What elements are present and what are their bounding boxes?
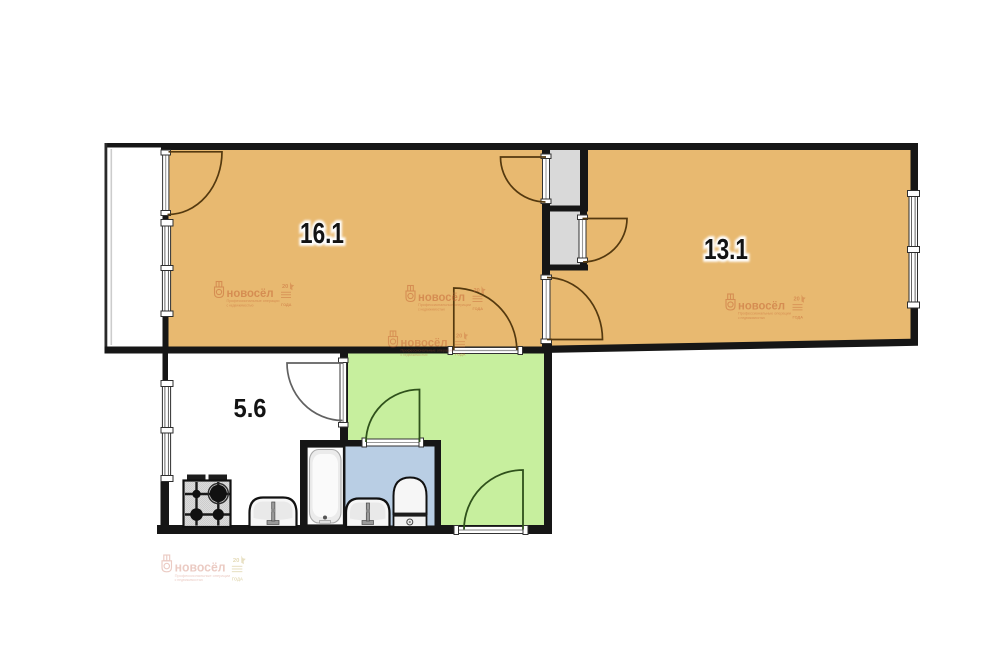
svg-text:новосёл: новосёл	[738, 299, 785, 313]
svg-text:16.1: 16.1	[300, 218, 344, 250]
svg-text:20: 20	[456, 334, 462, 340]
svg-text:20: 20	[233, 558, 240, 564]
svg-text:ГОДА: ГОДА	[473, 306, 484, 311]
svg-text:новосёл: новосёл	[418, 290, 465, 304]
svg-text:20: 20	[794, 297, 800, 303]
svg-text:с недвижимостью: с недвижимостью	[738, 316, 765, 320]
svg-text:20: 20	[474, 288, 480, 294]
svg-text:Профессиональные операции: Профессиональные операции	[175, 574, 231, 578]
svg-text:ГОДА: ГОДА	[455, 352, 466, 357]
svg-text:с недвижимостью: с недвижимостью	[227, 303, 254, 307]
svg-text:5.6: 5.6	[234, 393, 267, 423]
svg-text:20: 20	[282, 284, 288, 290]
svg-text:новосёл: новосёл	[401, 336, 448, 350]
svg-text:с недвижимостью: с недвижимостью	[418, 307, 445, 311]
svg-text:новосёл: новосёл	[227, 286, 274, 300]
svg-text:ГОДА: ГОДА	[793, 315, 804, 320]
svg-text:13.1: 13.1	[704, 234, 748, 266]
svg-text:новосёл: новосёл	[175, 559, 226, 574]
svg-text:ГОДА: ГОДА	[232, 577, 243, 582]
svg-text:с недвижимостью: с недвижимостью	[175, 578, 204, 582]
svg-text:ГОДА: ГОДА	[281, 302, 292, 307]
svg-text:с недвижимостью: с недвижимостью	[401, 353, 428, 357]
